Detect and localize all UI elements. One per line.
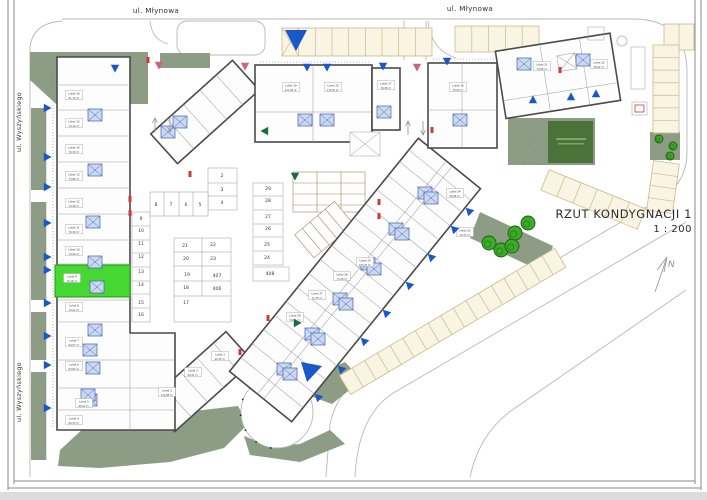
svg-text:16: 16 <box>138 312 144 318</box>
stair-icon <box>88 109 102 121</box>
unit-label: Lokal 292,91 m² <box>185 368 202 377</box>
stair-icon <box>88 164 102 176</box>
svg-text:21: 21 <box>182 243 188 249</box>
building-top-b <box>372 68 400 130</box>
unit-label: Lokal 2771,35 m² <box>309 291 326 300</box>
unit-label: Lokal 466,33 m² <box>66 416 83 425</box>
svg-text:Lokal 1: Lokal 1 <box>162 389 172 393</box>
unit-label: Lokal 870,21 m² <box>66 303 83 312</box>
svg-text:73,16 m²: 73,16 m² <box>337 278 348 281</box>
svg-text:28: 28 <box>265 198 271 204</box>
site-plan-drawing: Lokal 1681,74 m²Lokal 1570,16 m²Lokal 14… <box>0 0 707 500</box>
svg-text:70,26 m²: 70,26 m² <box>69 205 80 208</box>
svg-text:Lokal 20: Lokal 20 <box>327 84 339 88</box>
unit-label: Lokal 2873,16 m² <box>334 272 351 281</box>
svg-text:Lokal 18: Lokal 18 <box>452 84 464 88</box>
svg-text:34,36 m²: 34,36 m² <box>381 87 392 90</box>
svg-text:22: 22 <box>210 242 216 248</box>
svg-text:3: 3 <box>221 187 224 193</box>
stair-icon <box>377 106 391 118</box>
svg-text:70,30 m²: 70,30 m² <box>69 151 80 154</box>
building-top-c <box>428 63 497 148</box>
svg-text:58,92 m²: 58,92 m² <box>594 66 605 69</box>
svg-text:Lokal 21: Lokal 21 <box>536 63 548 67</box>
svg-text:Lokal 22: Lokal 22 <box>593 61 605 65</box>
svg-text:7: 7 <box>170 202 173 208</box>
svg-text:Lokal 13: Lokal 13 <box>68 173 80 177</box>
stair-icon <box>90 281 104 293</box>
svg-text:64,07 m²: 64,07 m² <box>69 344 80 347</box>
svg-text:103,97 m²: 103,97 m² <box>359 264 371 267</box>
svg-text:Lokal 7: Lokal 7 <box>69 339 79 343</box>
svg-text:408: 408 <box>266 271 275 277</box>
building-top-a <box>255 65 372 142</box>
unit-label: Lokal 390,15 m² <box>212 352 229 361</box>
stair-icon <box>83 344 97 356</box>
svg-text:23: 23 <box>210 256 216 262</box>
svg-text:20: 20 <box>183 256 189 262</box>
street-label-mlynowa-2: ul. Młynowa <box>447 4 493 13</box>
svg-text:Lokal 12: Lokal 12 <box>68 200 80 204</box>
svg-text:Lokal 16: Lokal 16 <box>68 92 80 96</box>
stair-icon <box>453 114 467 126</box>
unit-label: Lokal 1570,16 m² <box>66 119 83 128</box>
stair-icon <box>517 58 531 70</box>
stair-icon <box>424 192 438 204</box>
svg-text:Lokal 23: Lokal 23 <box>459 229 471 233</box>
stair-icon <box>88 256 102 268</box>
svg-text:10: 10 <box>138 228 144 234</box>
svg-text:407: 407 <box>213 273 222 279</box>
unit-label: Lokal 2322,71 m² <box>457 228 474 237</box>
svg-text:81,74 m²: 81,74 m² <box>69 97 80 100</box>
unit-label: Lokal 1270,26 m² <box>66 199 83 208</box>
svg-text:Lokal 4: Lokal 4 <box>69 417 79 421</box>
stair-icon <box>86 362 100 374</box>
svg-text:112,88 m²: 112,88 m² <box>161 394 173 397</box>
svg-text:66,33 m²: 66,33 m² <box>69 422 80 425</box>
svg-text:70,16 m²: 70,16 m² <box>67 280 78 283</box>
stair-icon <box>311 333 325 345</box>
stair-icon <box>298 114 312 126</box>
svg-text:75,50 m²: 75,50 m² <box>453 89 464 92</box>
unit-label: Lokal 598,22 m² <box>76 399 93 408</box>
unit-label: Lokal 2440,96 m² <box>447 189 464 198</box>
svg-text:Lokal 28: Lokal 28 <box>336 273 348 277</box>
svg-text:22,71 m²: 22,71 m² <box>460 234 471 237</box>
svg-text:15: 15 <box>138 300 144 306</box>
unit-label: Lokal 1875,50 m² <box>450 83 467 92</box>
north-label: N <box>668 260 675 270</box>
unit-label: Lokal 19127,04 m² <box>283 83 300 92</box>
stair-icon <box>88 324 102 336</box>
unit-label: Lokal 20132,87 m² <box>325 83 342 92</box>
unit-label: Lokal 1470,30 m² <box>66 145 83 154</box>
svg-text:71,35 m²: 71,35 m² <box>312 297 323 300</box>
unit-label: Lokal 1112,88 m² <box>159 388 176 397</box>
stair-icon <box>86 216 100 228</box>
svg-text:Lokal 2: Lokal 2 <box>188 369 198 373</box>
svg-text:27: 27 <box>265 214 271 220</box>
svg-text:Lokal 14: Lokal 14 <box>68 146 80 150</box>
unit-label: Lokal 970,16 m² <box>64 274 81 283</box>
svg-text:26: 26 <box>265 226 271 232</box>
svg-text:90,15 m²: 90,15 m² <box>215 358 226 361</box>
svg-text:Lokal 17: Lokal 17 <box>380 82 392 86</box>
stair-icon <box>339 298 353 310</box>
svg-text:70,21 m²: 70,21 m² <box>69 309 80 312</box>
street-label-wyszynskiego-2: ul. Wyszyńskiego <box>15 362 23 422</box>
svg-text:Lokal 15: Lokal 15 <box>68 120 80 124</box>
svg-text:Lokal 9: Lokal 9 <box>67 275 77 279</box>
svg-text:Lokal 11: Lokal 11 <box>68 226 80 230</box>
elevator-core <box>350 132 380 156</box>
svg-text:Lokal 8: Lokal 8 <box>69 304 79 308</box>
svg-text:6: 6 <box>185 202 188 208</box>
svg-text:19: 19 <box>184 272 190 278</box>
svg-text:98,22 m²: 98,22 m² <box>79 405 90 408</box>
svg-text:92,91 m²: 92,91 m² <box>188 374 199 377</box>
svg-text:Lokal 29: Lokal 29 <box>359 259 371 263</box>
unit-label: Lokal 1681,74 m² <box>66 91 83 100</box>
unit-label: Lokal 764,07 m² <box>66 338 83 347</box>
stair-icon <box>395 228 409 240</box>
svg-text:4: 4 <box>221 200 224 206</box>
unit-label: Lokal 1170,30 m² <box>66 225 83 234</box>
stair-icon <box>173 116 187 128</box>
svg-text:12: 12 <box>138 254 144 260</box>
svg-text:Lokal 26: Lokal 26 <box>289 314 301 318</box>
stair-icon <box>576 54 590 66</box>
stair-icon <box>283 368 297 380</box>
site-plan-page: Lokal 1681,74 m²Lokal 1570,16 m²Lokal 14… <box>0 0 707 500</box>
unit-label: Lokal 29103,97 m² <box>357 258 374 267</box>
building-connector-north <box>151 60 260 163</box>
unit-label: Lokal 2174,08 m² <box>534 62 551 71</box>
svg-text:132,87 m²: 132,87 m² <box>327 89 339 92</box>
svg-text:70,16 m²: 70,16 m² <box>69 125 80 128</box>
svg-text:Lokal 6: Lokal 6 <box>69 363 79 367</box>
svg-text:5: 5 <box>199 202 202 208</box>
svg-text:127,04 m²: 127,04 m² <box>285 89 297 92</box>
unit-label: Lokal 2258,92 m² <box>591 60 608 69</box>
building-left-block <box>57 57 175 430</box>
svg-text:Lokal 10: Lokal 10 <box>68 248 80 252</box>
sheet-bottom-band <box>0 492 707 500</box>
street-label-mlynowa-1: ul. Młynowa <box>133 6 179 15</box>
unit-label: Lokal 1373,86 m² <box>66 172 83 181</box>
svg-text:13: 13 <box>138 269 144 275</box>
svg-text:70,30 m²: 70,30 m² <box>69 231 80 234</box>
svg-text:73,86 m²: 73,86 m² <box>69 178 80 181</box>
svg-text:406: 406 <box>213 286 222 292</box>
unit-label: Lokal 1734,36 m² <box>378 81 395 90</box>
drawing-scale: 1 : 200 <box>653 224 692 235</box>
north-arrow-icon: N <box>655 257 675 292</box>
svg-text:17: 17 <box>183 300 189 306</box>
svg-text:Lokal 3: Lokal 3 <box>215 353 225 357</box>
svg-text:14: 14 <box>138 282 144 288</box>
svg-text:Lokal 19: Lokal 19 <box>285 84 297 88</box>
svg-text:Lokal 27: Lokal 27 <box>311 292 323 296</box>
svg-text:18: 18 <box>183 285 189 291</box>
svg-text:24: 24 <box>264 255 270 261</box>
svg-text:25: 25 <box>264 242 270 248</box>
svg-text:9: 9 <box>140 216 143 222</box>
svg-text:63,81 m²: 63,81 m² <box>69 368 80 371</box>
dark-green-plot <box>548 121 593 163</box>
svg-text:74,08 m²: 74,08 m² <box>537 68 548 71</box>
unit-label: Lokal 663,81 m² <box>66 362 83 371</box>
svg-text:29: 29 <box>265 186 271 192</box>
svg-text:11: 11 <box>138 241 144 247</box>
traffic-island <box>177 21 265 55</box>
svg-text:70,26 m²: 70,26 m² <box>69 253 80 256</box>
unit-label: Lokal 1070,26 m² <box>66 247 83 256</box>
drawing-title: RZUT KONDYGNACJI 1 <box>555 207 692 221</box>
street-label-wyszynskiego-1: ul. Wyszyńskiego <box>15 92 23 152</box>
svg-text:2: 2 <box>221 173 224 179</box>
svg-text:8: 8 <box>155 202 158 208</box>
svg-text:Lokal 24: Lokal 24 <box>449 190 461 194</box>
svg-text:Lokal 5: Lokal 5 <box>79 400 89 404</box>
stair-icon <box>320 114 334 126</box>
svg-text:40,96 m²: 40,96 m² <box>450 195 461 198</box>
